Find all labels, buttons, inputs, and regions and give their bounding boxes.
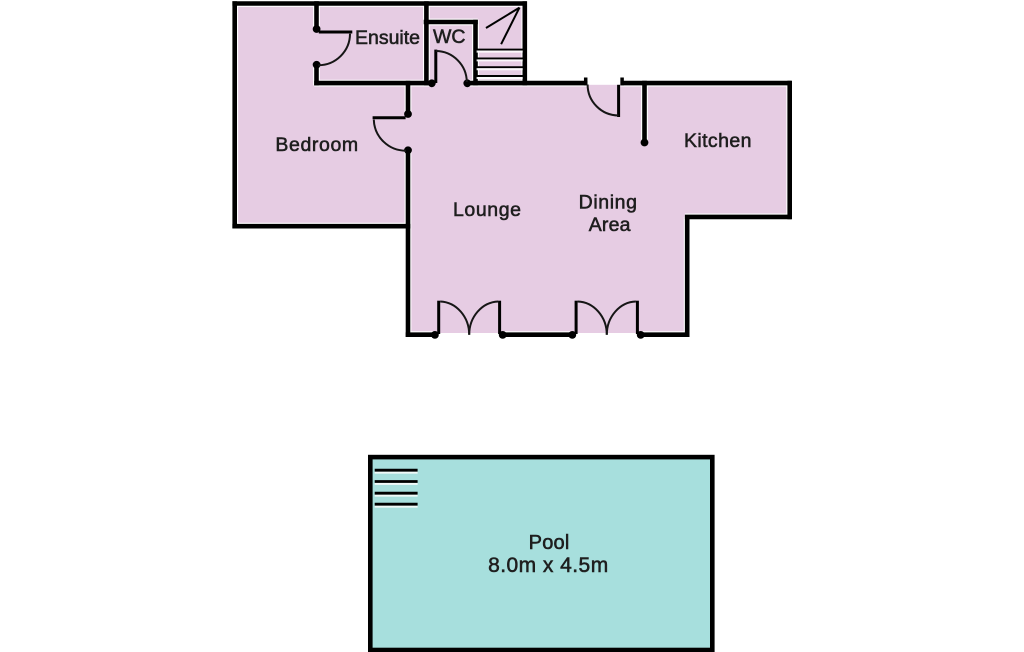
svg-text:Ensuite: Ensuite: [355, 27, 420, 49]
svg-text:Bedroom: Bedroom: [275, 134, 358, 156]
svg-text:Pool: Pool: [529, 532, 570, 554]
svg-text:Kitchen: Kitchen: [684, 130, 752, 152]
svg-text:Dining: Dining: [579, 192, 638, 214]
svg-text:Lounge: Lounge: [453, 199, 522, 221]
svg-text:8.0m x 4.5m: 8.0m x 4.5m: [488, 554, 609, 577]
svg-text:Area: Area: [589, 214, 631, 236]
svg-text:WC: WC: [433, 26, 466, 48]
